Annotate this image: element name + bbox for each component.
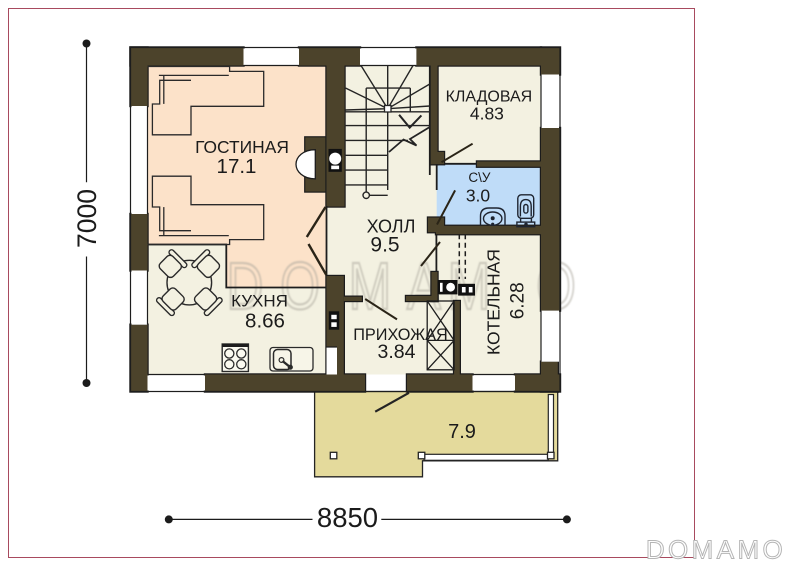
svg-text:С\У: С\У <box>468 170 491 185</box>
svg-text:17.1: 17.1 <box>217 155 257 178</box>
svg-text:8850: 8850 <box>317 502 378 533</box>
svg-text:КУХНЯ: КУХНЯ <box>231 292 288 311</box>
svg-text:КОТЕЛЬНАЯ: КОТЕЛЬНАЯ <box>484 249 504 355</box>
svg-text:3.0: 3.0 <box>466 186 491 206</box>
svg-text:7000: 7000 <box>72 189 102 248</box>
svg-text:O: O <box>280 248 320 323</box>
svg-text:6.28: 6.28 <box>507 282 528 319</box>
svg-text:3.84: 3.84 <box>378 341 416 363</box>
svg-text:9.5: 9.5 <box>370 234 399 257</box>
svg-text:7.9: 7.9 <box>448 421 476 443</box>
svg-text:DOMAMO: DOMAMO <box>646 535 786 565</box>
svg-text:4.83: 4.83 <box>470 104 504 124</box>
svg-text:ГОСТИНАЯ: ГОСТИНАЯ <box>195 137 289 157</box>
svg-text:8.66: 8.66 <box>245 310 285 333</box>
